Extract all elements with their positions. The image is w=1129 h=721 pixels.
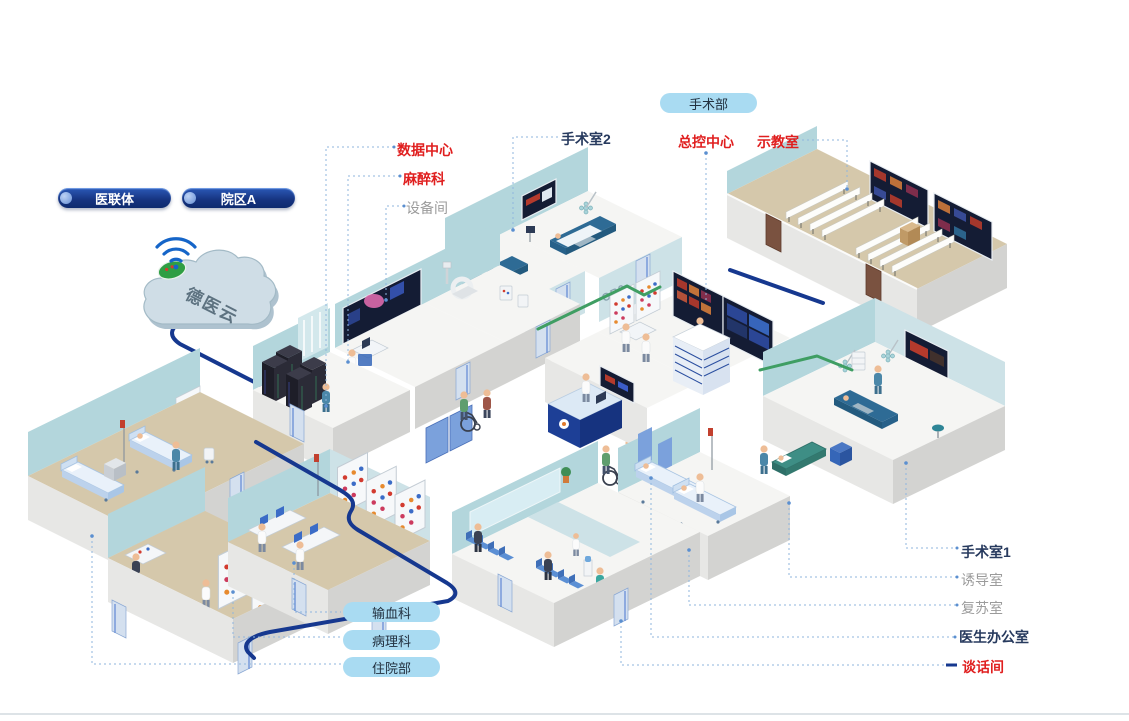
locker-shelves [673,324,730,395]
pathology-pill[interactable]: 病理科 [343,630,440,650]
isometric-illustration: OR2 OR3 [0,0,1129,721]
hospital-network-diagram: OR2 OR3 [0,0,1129,721]
surgery-department-label: 手术部 [689,94,728,113]
blood-transfusion-pill[interactable]: 输血科 [343,602,440,622]
campus-a-pill[interactable]: 院区A [182,188,295,208]
bottom-divider [0,713,1129,715]
hospital-union-pill[interactable]: 医联体 [58,188,171,208]
inpatient-pill[interactable]: 住院部 [343,657,440,677]
room-operating-room-1 [763,298,1005,504]
label-induction-room: 诱导室 [961,570,1003,590]
label-doctor-office: 医生办公室 [959,627,1029,647]
label-recovery-room: 复苏室 [961,598,1003,618]
label-operating-room-2: 手术室2 [561,129,611,149]
label-equipment-room: 设备间 [406,198,448,218]
surgery-department-pill[interactable]: 手术部 [660,93,757,113]
pathology-label: 病理科 [372,631,411,650]
label-anesthesia: 麻醉科 [403,169,445,189]
label-operating-room-1: 手术室1 [961,542,1011,562]
campus-a-label: 院区A [221,189,256,208]
label-master-control: 总控中心 [678,132,734,152]
or1-supply-cart [852,352,865,370]
inpatient-label: 住院部 [372,658,411,677]
label-data-center: 数据中心 [397,140,453,160]
hospital-union-label: 医联体 [95,189,134,208]
label-demo-classroom: 示教室 [757,132,799,152]
label-talk-room: 谈话间 [962,657,1004,677]
blood-transfusion-label: 输血科 [372,603,411,622]
water-dispenser [584,556,592,576]
cloud-icon: 德医云 [144,250,279,329]
